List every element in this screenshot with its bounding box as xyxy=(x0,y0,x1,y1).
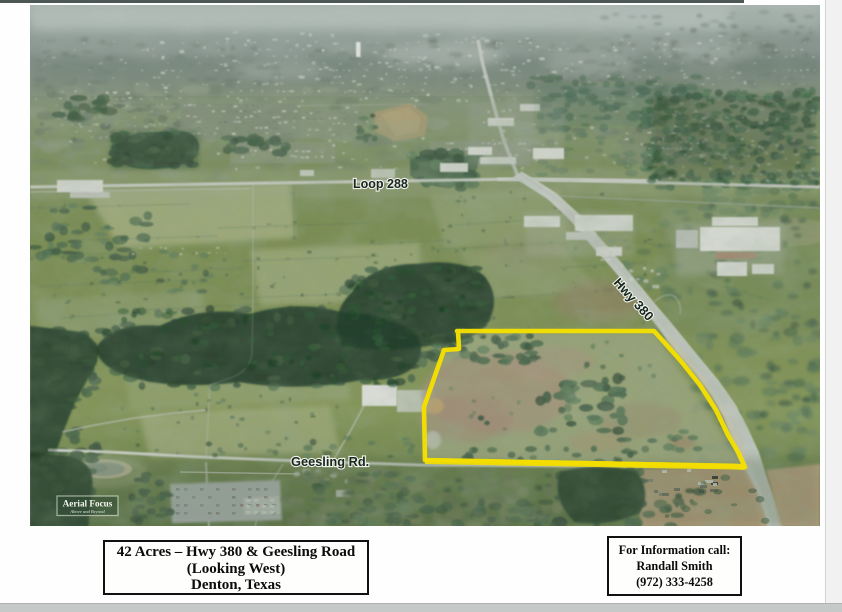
svg-text:Aerial Focus: Aerial Focus xyxy=(63,499,113,509)
svg-text:Loop 288: Loop 288 xyxy=(353,177,408,191)
svg-text:Geesling Rd.: Geesling Rd. xyxy=(291,454,369,469)
svg-text:Above and Beyond: Above and Beyond xyxy=(69,509,105,514)
